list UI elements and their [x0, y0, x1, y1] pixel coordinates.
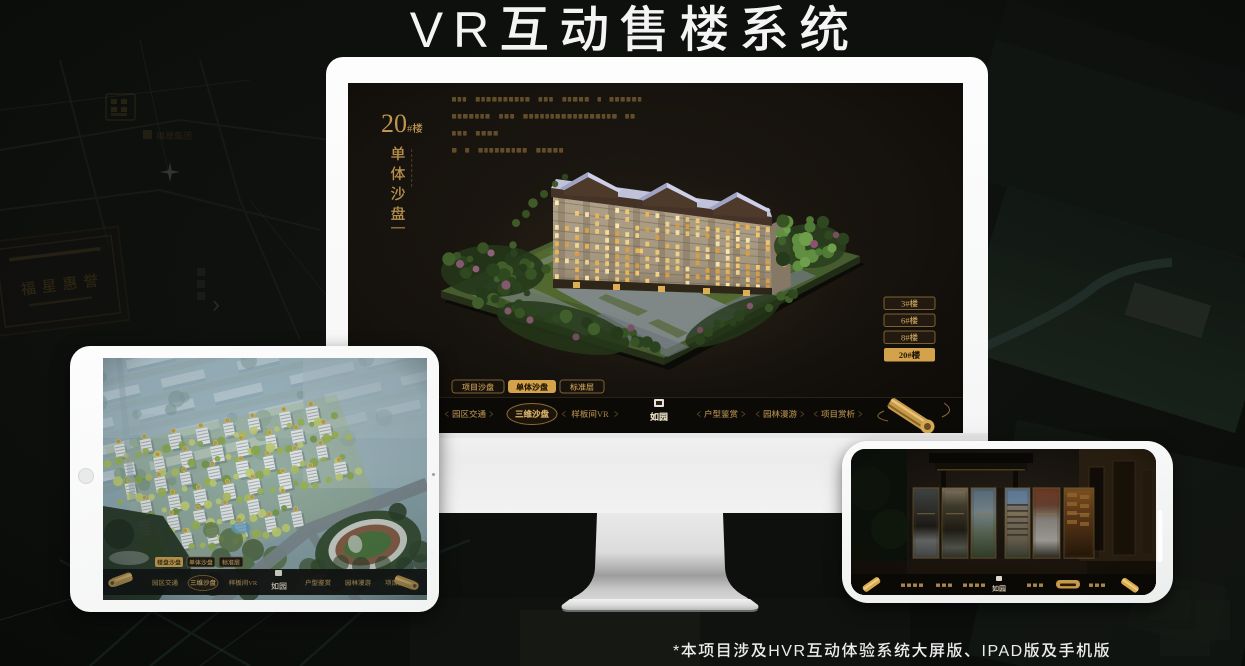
- svg-text:如园: 如园: [992, 584, 1006, 594]
- svg-text:›: ›: [212, 291, 220, 318]
- svg-text:福晟集团: 福晟集团: [156, 129, 192, 142]
